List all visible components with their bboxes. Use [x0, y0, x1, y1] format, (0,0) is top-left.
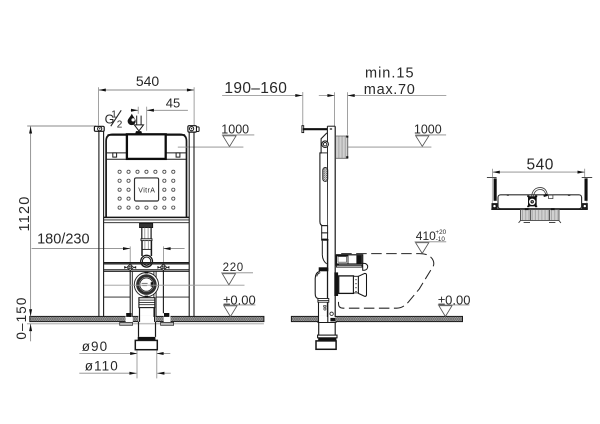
- svg-text:540: 540: [527, 157, 554, 174]
- svg-text:min.15: min.15: [365, 65, 415, 81]
- svg-text:±0.00: ±0.00: [223, 293, 255, 308]
- svg-text:0–150: 0–150: [14, 297, 29, 340]
- svg-text:45: 45: [166, 95, 180, 110]
- svg-text:ø110: ø110: [85, 358, 119, 373]
- svg-text:410: 410: [416, 229, 436, 243]
- svg-text:190–160: 190–160: [224, 80, 287, 97]
- svg-text:VitrA: VitrA: [138, 187, 155, 194]
- svg-text:ø90: ø90: [82, 339, 109, 354]
- svg-text:2: 2: [117, 119, 123, 130]
- svg-text:540: 540: [136, 73, 160, 89]
- svg-text:180/230: 180/230: [37, 231, 89, 247]
